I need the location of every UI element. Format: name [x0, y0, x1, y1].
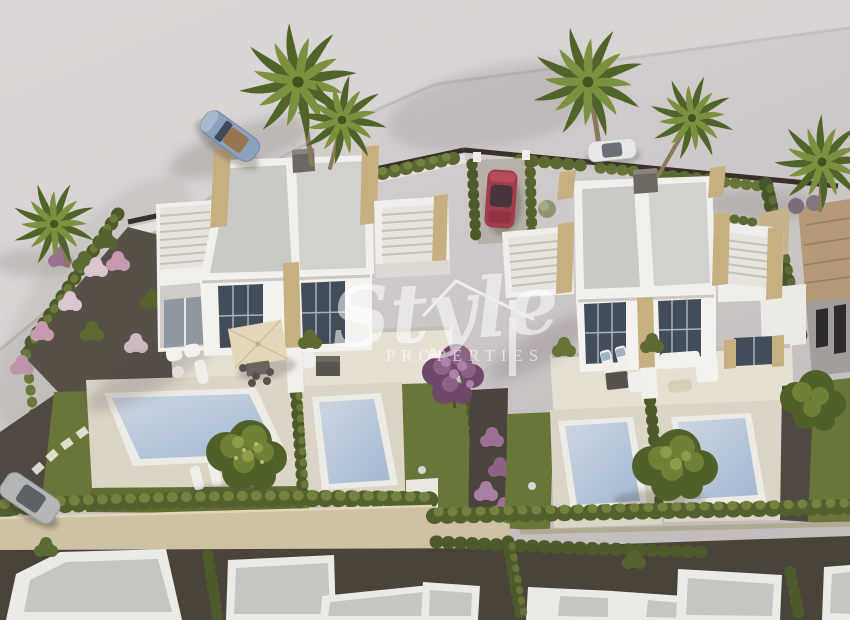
stone-pillar [557, 170, 576, 200]
render-canvas: Style PROPERTIES [0, 0, 850, 620]
watermark: Style PROPERTIES [328, 256, 562, 376]
watermark-caps-text: PROPERTIES [386, 346, 544, 365]
garden-lamp [528, 482, 536, 490]
stone-divider [637, 297, 655, 369]
coffee-table [605, 371, 629, 390]
outdoor-sofa [659, 351, 700, 370]
garden-lamp [418, 466, 426, 474]
bottom-band [0, 496, 850, 620]
stone-pillar [432, 194, 448, 264]
aerial-render: Style PROPERTIES [0, 0, 850, 620]
stone-divider [283, 262, 301, 349]
stone-pillar [712, 212, 730, 286]
round-bush [788, 198, 804, 214]
pool-3 [565, 422, 640, 505]
stone-pillar [556, 222, 574, 294]
window [734, 336, 774, 366]
stone-pillar [766, 226, 784, 300]
